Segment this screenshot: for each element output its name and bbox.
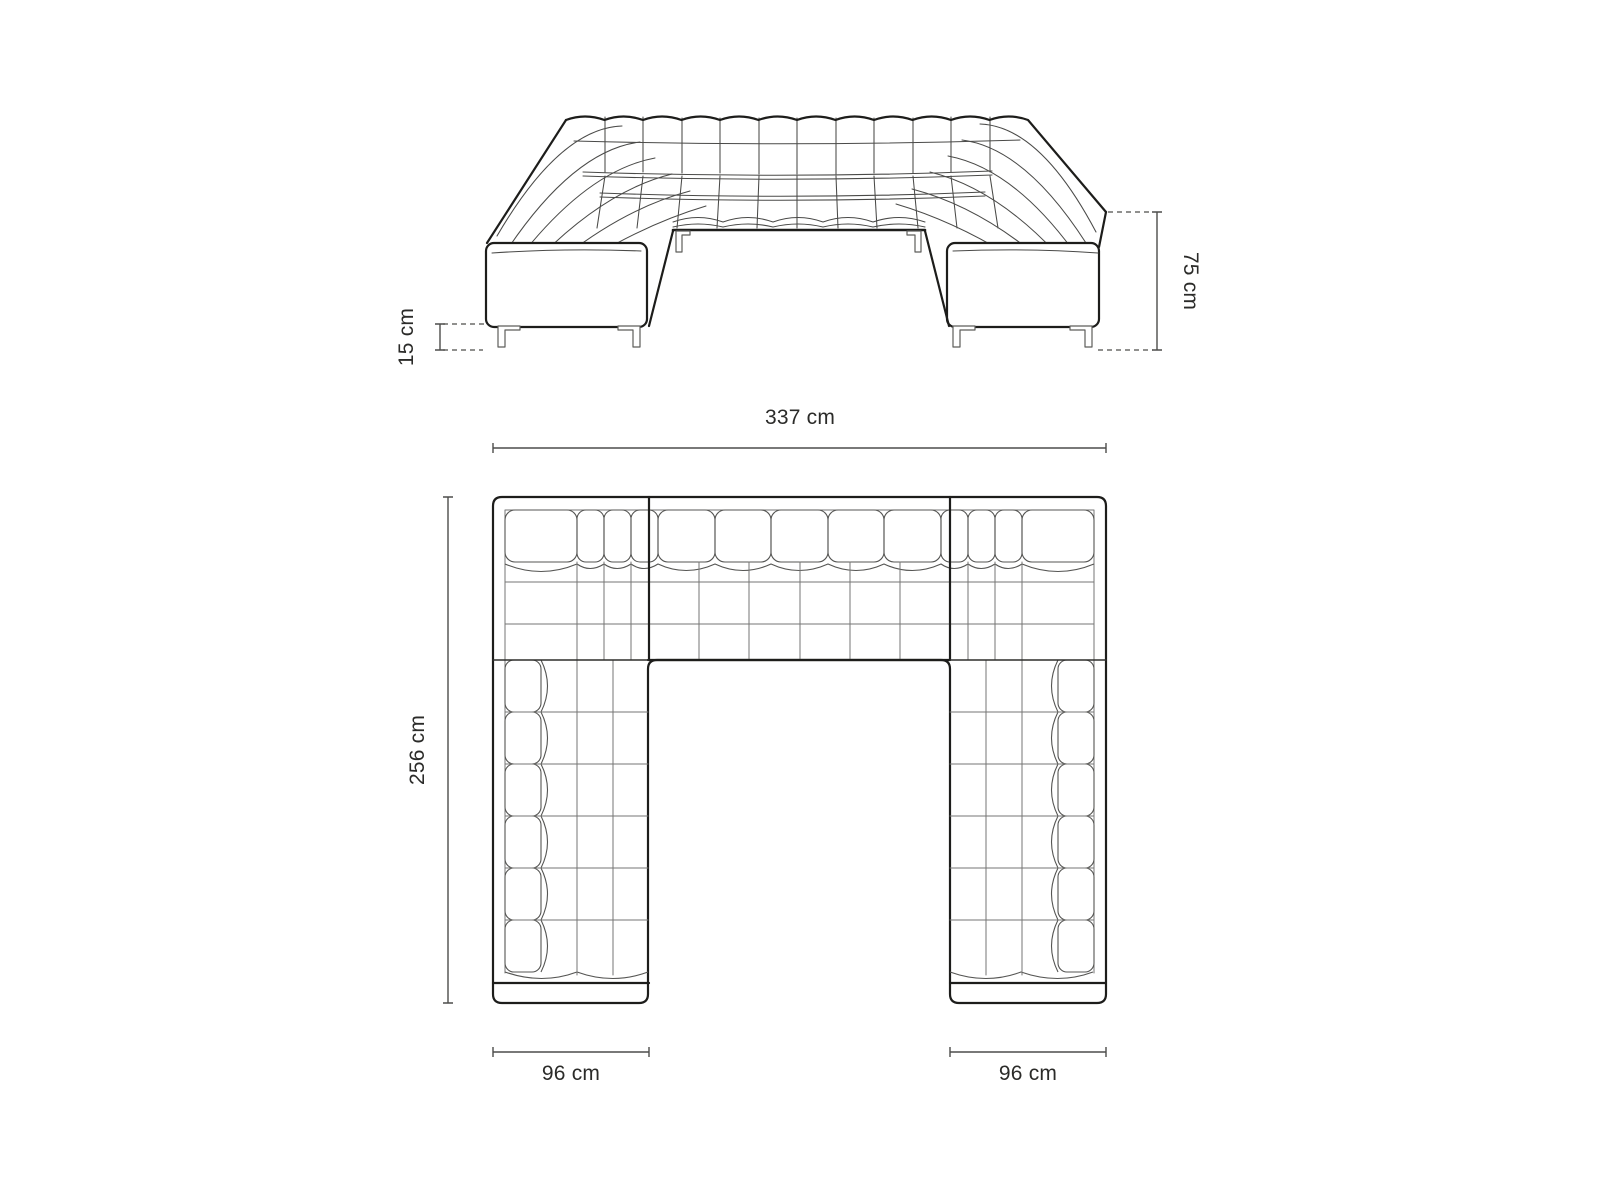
cushion bbox=[1058, 712, 1094, 764]
cushion bbox=[1058, 660, 1094, 712]
depth-dimension-label: 256 cm bbox=[406, 715, 429, 785]
seat-front-scallops bbox=[673, 218, 925, 228]
left-arm-width-label: 96 cm bbox=[542, 1062, 600, 1085]
band-grid-verticals bbox=[577, 562, 1022, 660]
cushion bbox=[505, 920, 541, 972]
right-arm-width-line bbox=[950, 1047, 1106, 1057]
right-arm-width-dimension: 96 cm bbox=[950, 1047, 1106, 1085]
left-arm-front-face bbox=[486, 243, 647, 327]
width-dimension-label: 337 cm bbox=[765, 406, 835, 429]
leg-height-dimension: 15 cm bbox=[395, 308, 486, 366]
arm-grid-horizontals bbox=[505, 712, 1094, 920]
cushion bbox=[941, 510, 968, 562]
cushion bbox=[631, 510, 658, 562]
cushion bbox=[1058, 868, 1094, 920]
cushion bbox=[505, 764, 541, 816]
front-view: 15 cm 75 cm bbox=[395, 117, 1202, 367]
cushion bbox=[715, 510, 771, 562]
leg-height-extension-lines bbox=[443, 324, 486, 350]
module-joint-lines bbox=[648, 497, 950, 660]
cushion bbox=[604, 510, 631, 562]
right-arm-front-face bbox=[947, 243, 1099, 327]
arm-cushion-scallops bbox=[505, 660, 1093, 979]
cushion bbox=[1022, 510, 1094, 562]
top-view: 337 cm 256 cm 96 cm 96 cm bbox=[406, 406, 1106, 1085]
cushion bbox=[505, 868, 541, 920]
width-dimension: 337 cm bbox=[493, 406, 1106, 453]
cushion bbox=[968, 510, 995, 562]
cushion bbox=[1058, 764, 1094, 816]
cushion bbox=[658, 510, 715, 562]
cushion bbox=[1058, 920, 1094, 972]
arm-grid-verticals bbox=[577, 660, 1022, 975]
top-view-sofa-drawing bbox=[493, 497, 1106, 1003]
depth-dimension: 256 cm bbox=[406, 497, 453, 1003]
right-arm-width-label: 96 cm bbox=[999, 1062, 1057, 1085]
height-dimension-line bbox=[1152, 212, 1162, 350]
depth-dimension-line bbox=[443, 497, 453, 1003]
diagram-svg: 15 cm 75 cm bbox=[0, 0, 1600, 1200]
sofa-dimension-diagram: 15 cm 75 cm bbox=[0, 0, 1600, 1200]
cushion bbox=[505, 712, 541, 764]
height-dimension-label: 75 cm bbox=[1179, 252, 1202, 310]
cushion bbox=[771, 510, 828, 562]
cushion bbox=[995, 510, 1022, 562]
leg-height-dimension-label: 15 cm bbox=[395, 308, 418, 366]
height-extension-lines bbox=[1098, 212, 1153, 350]
left-back-slant-edge bbox=[487, 120, 566, 243]
plan-back-cushions bbox=[505, 510, 1094, 562]
left-arm-width-line bbox=[493, 1047, 649, 1057]
front-view-sofa-drawing bbox=[486, 117, 1106, 348]
leg-height-dimension-line bbox=[435, 324, 445, 350]
cushion bbox=[577, 510, 604, 562]
cushion bbox=[1058, 816, 1094, 868]
left-arm-width-dimension: 96 cm bbox=[493, 1047, 649, 1085]
cushion bbox=[884, 510, 941, 562]
cushion bbox=[505, 660, 541, 712]
cushion bbox=[828, 510, 884, 562]
cushion bbox=[505, 816, 541, 868]
width-dimension-line bbox=[493, 443, 1106, 453]
cushion bbox=[505, 510, 577, 562]
height-dimension: 75 cm bbox=[1098, 212, 1202, 350]
back-cushion-seams bbox=[605, 117, 990, 174]
